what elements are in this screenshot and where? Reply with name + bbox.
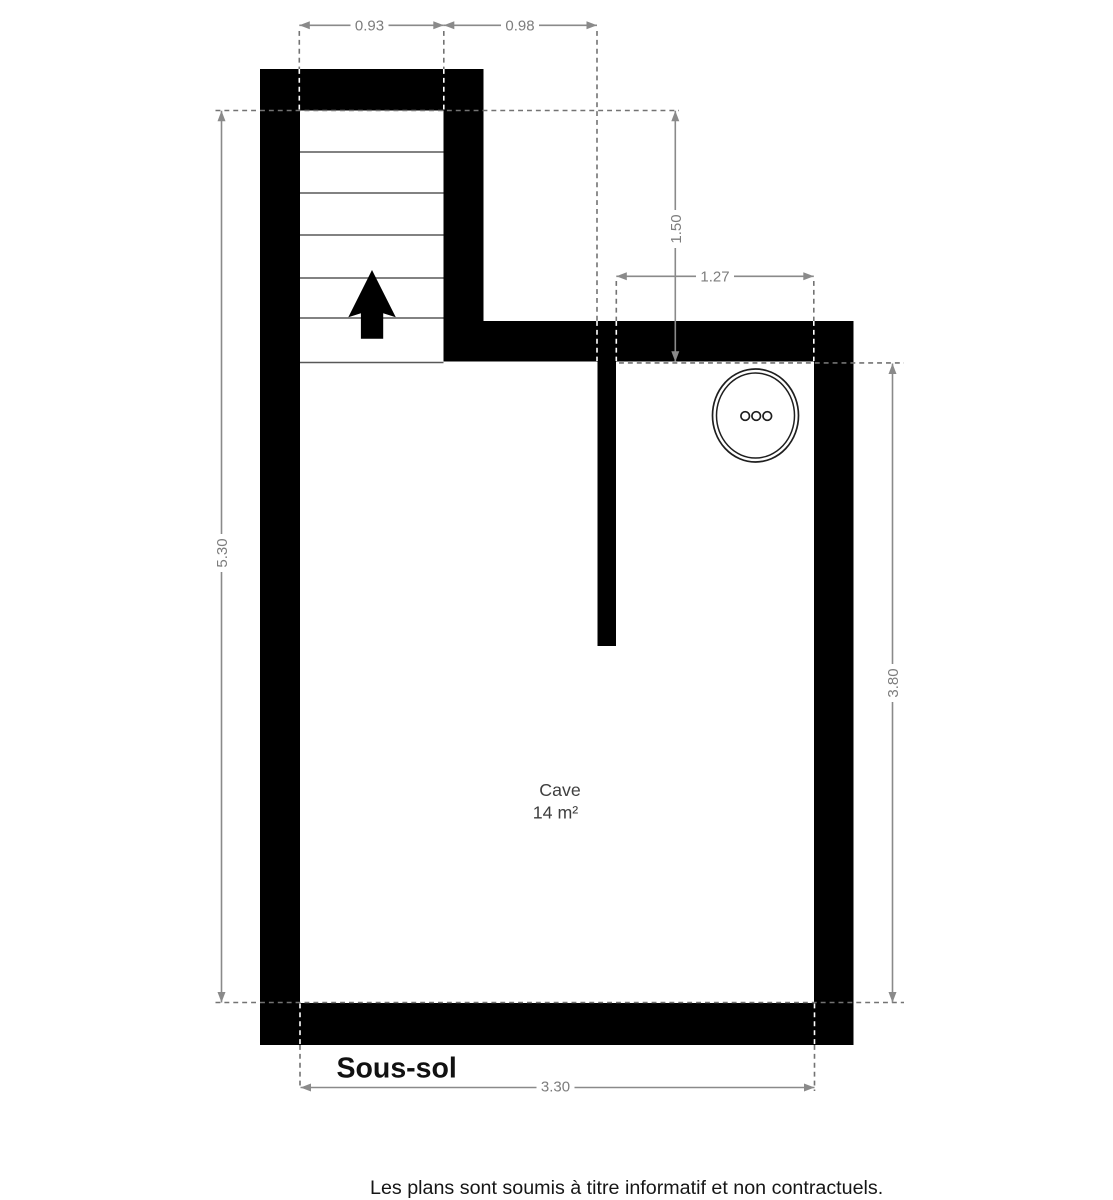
- svg-text:Les plans sont soumis à titre: Les plans sont soumis à titre informatif…: [370, 1177, 883, 1199]
- svg-text:3.30: 3.30: [541, 1078, 570, 1095]
- svg-text:1.27: 1.27: [700, 269, 729, 286]
- svg-text:0.93: 0.93: [355, 18, 384, 35]
- svg-text:14 m²: 14 m²: [533, 803, 579, 823]
- svg-text:5.30: 5.30: [214, 538, 231, 567]
- svg-text:Cave: Cave: [539, 780, 581, 800]
- svg-text:1.50: 1.50: [668, 214, 685, 243]
- svg-text:0.98: 0.98: [505, 18, 534, 35]
- svg-text:Sous-sol: Sous-sol: [337, 1053, 457, 1085]
- svg-text:3.80: 3.80: [885, 668, 902, 697]
